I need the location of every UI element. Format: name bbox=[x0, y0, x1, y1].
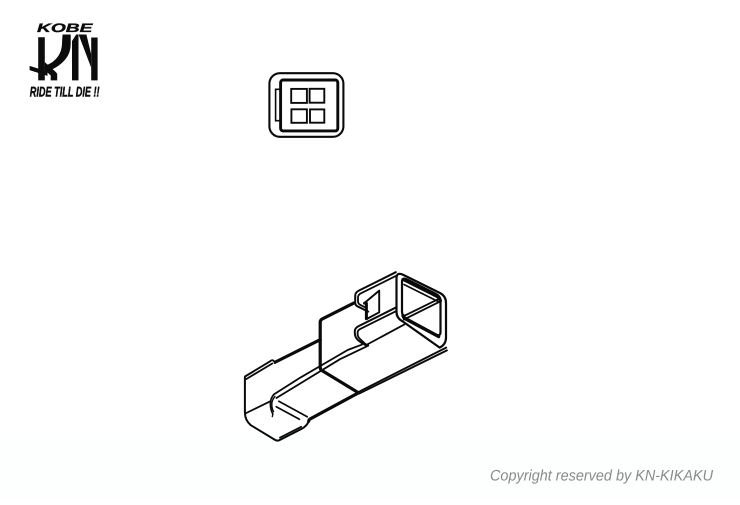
svg-text:Copyright reserved by KN-KIKAK: Copyright reserved by KN-KIKAKU bbox=[490, 467, 714, 484]
svg-text:KOBE: KOBE bbox=[37, 21, 94, 35]
svg-text:RIDE TILL DIE !!: RIDE TILL DIE !! bbox=[30, 83, 100, 99]
